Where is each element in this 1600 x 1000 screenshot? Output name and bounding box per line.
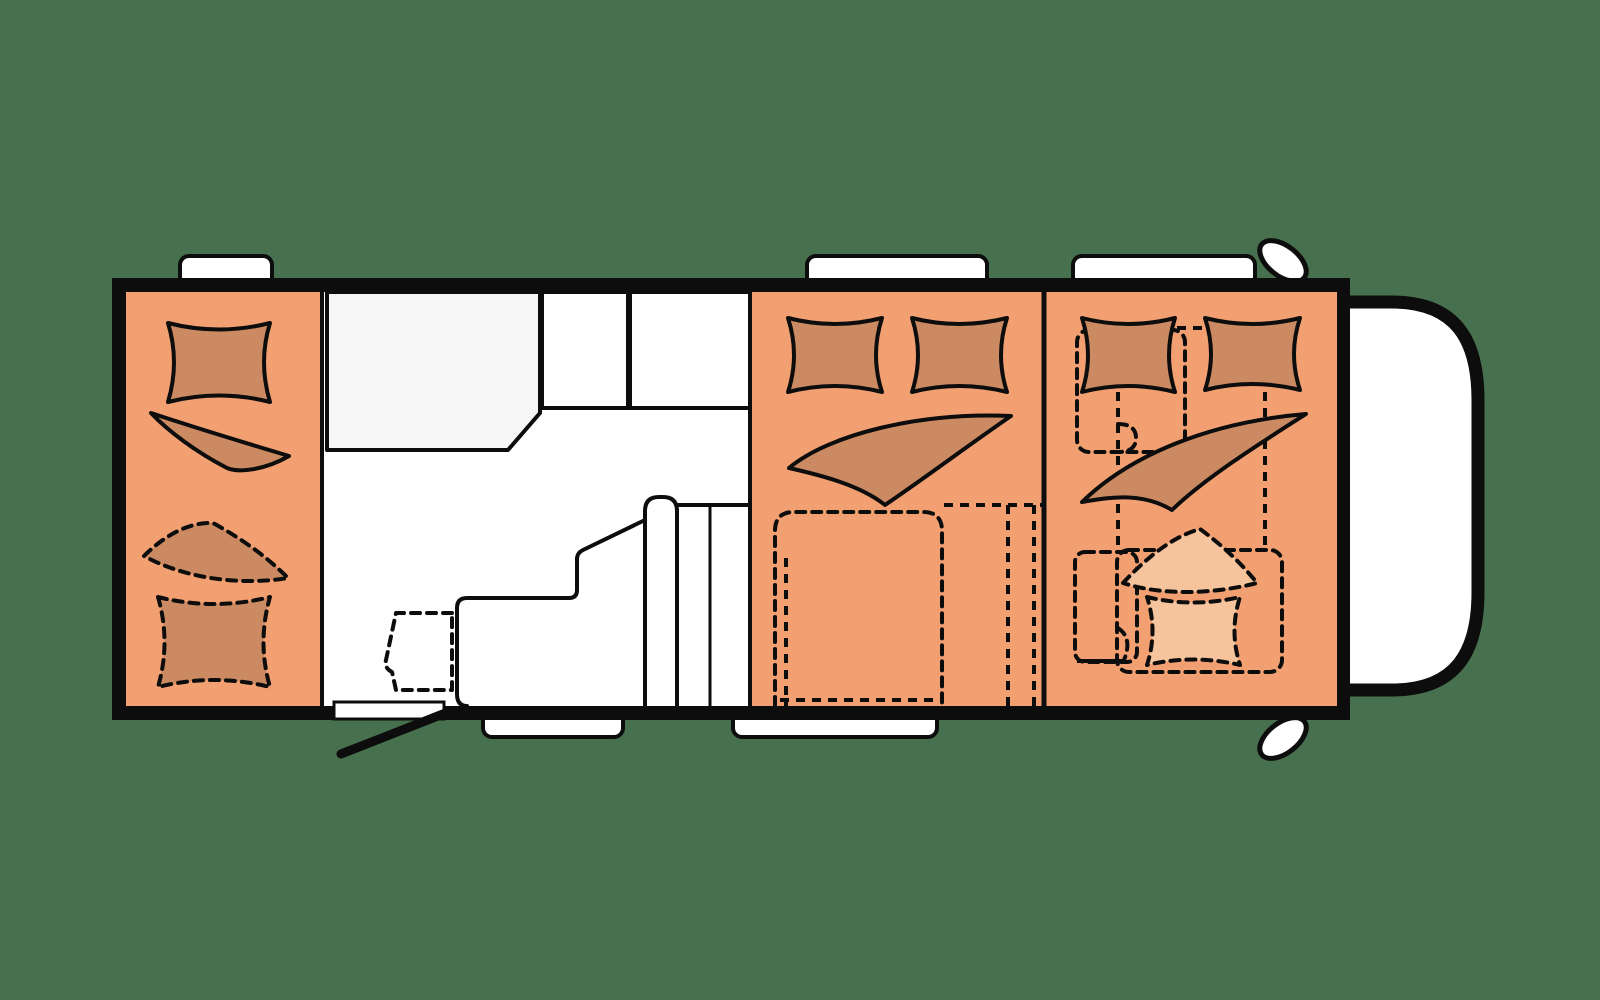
pillow-icon — [1082, 318, 1175, 392]
washroom — [327, 292, 540, 450]
fixture-cabinet-b — [630, 292, 750, 408]
cab-front — [1340, 302, 1478, 690]
pillow-icon — [1205, 318, 1300, 390]
floorplan-canvas — [0, 0, 1600, 1000]
pillow-icon — [168, 323, 270, 402]
optional-pillow-icon — [158, 597, 270, 687]
optional-pillow-icon — [1147, 597, 1240, 665]
pillow-icon — [788, 318, 882, 392]
pillow-icon — [912, 318, 1007, 392]
floorplan-svg — [0, 0, 1600, 1000]
fixture-cabinet-a — [542, 292, 628, 408]
